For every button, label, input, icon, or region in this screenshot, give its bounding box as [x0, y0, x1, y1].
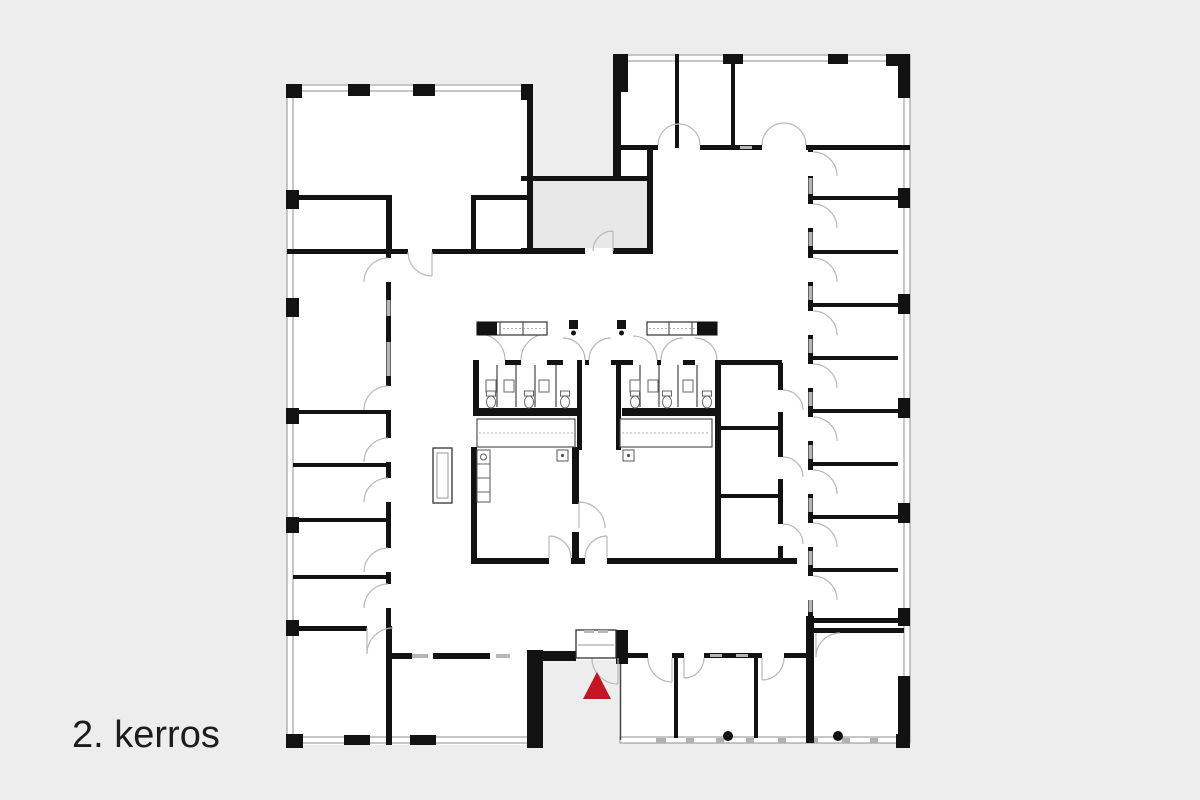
floor-label: 2. kerros: [72, 714, 220, 756]
stair-void: [533, 181, 647, 248]
floor-plan: 2. kerros: [0, 0, 1200, 800]
entrance-vestibule: [576, 630, 616, 658]
elevator-icon: [433, 448, 452, 503]
floor-plan-page: 2. kerros: [0, 0, 1200, 800]
locker-strip: [477, 450, 490, 502]
